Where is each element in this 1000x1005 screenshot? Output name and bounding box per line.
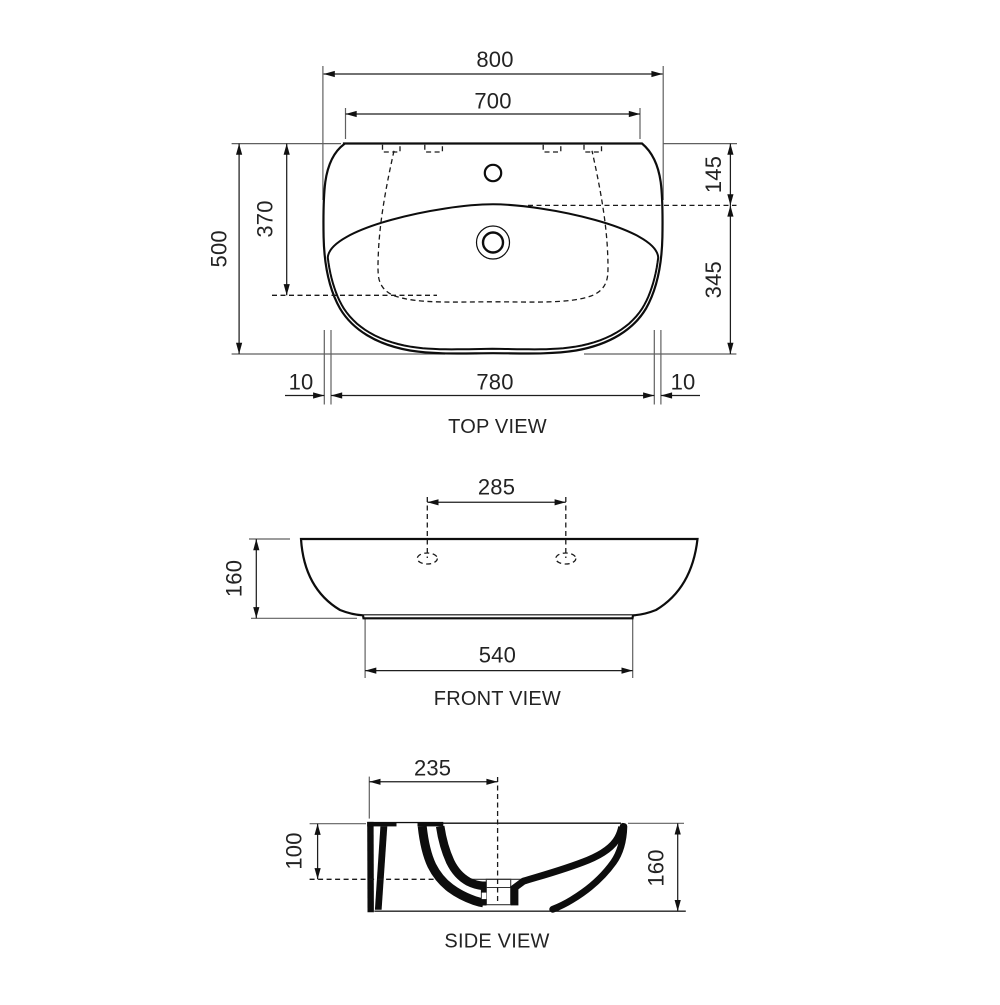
svg-text:160: 160 [644, 849, 669, 886]
svg-text:540: 540 [479, 642, 516, 667]
svg-text:285: 285 [478, 475, 515, 500]
svg-text:700: 700 [474, 89, 511, 114]
svg-text:SIDE VIEW: SIDE VIEW [444, 930, 549, 952]
svg-text:10: 10 [671, 370, 696, 395]
svg-text:345: 345 [701, 261, 726, 298]
svg-text:500: 500 [206, 230, 231, 267]
svg-text:780: 780 [476, 370, 513, 395]
svg-text:235: 235 [414, 756, 451, 781]
svg-text:FRONT VIEW: FRONT VIEW [434, 688, 561, 710]
svg-text:100: 100 [282, 832, 307, 869]
svg-text:160: 160 [222, 560, 247, 597]
svg-text:145: 145 [701, 156, 726, 193]
svg-text:TOP VIEW: TOP VIEW [448, 416, 547, 438]
svg-text:370: 370 [252, 200, 277, 237]
svg-text:800: 800 [476, 47, 513, 72]
svg-text:10: 10 [289, 370, 314, 395]
